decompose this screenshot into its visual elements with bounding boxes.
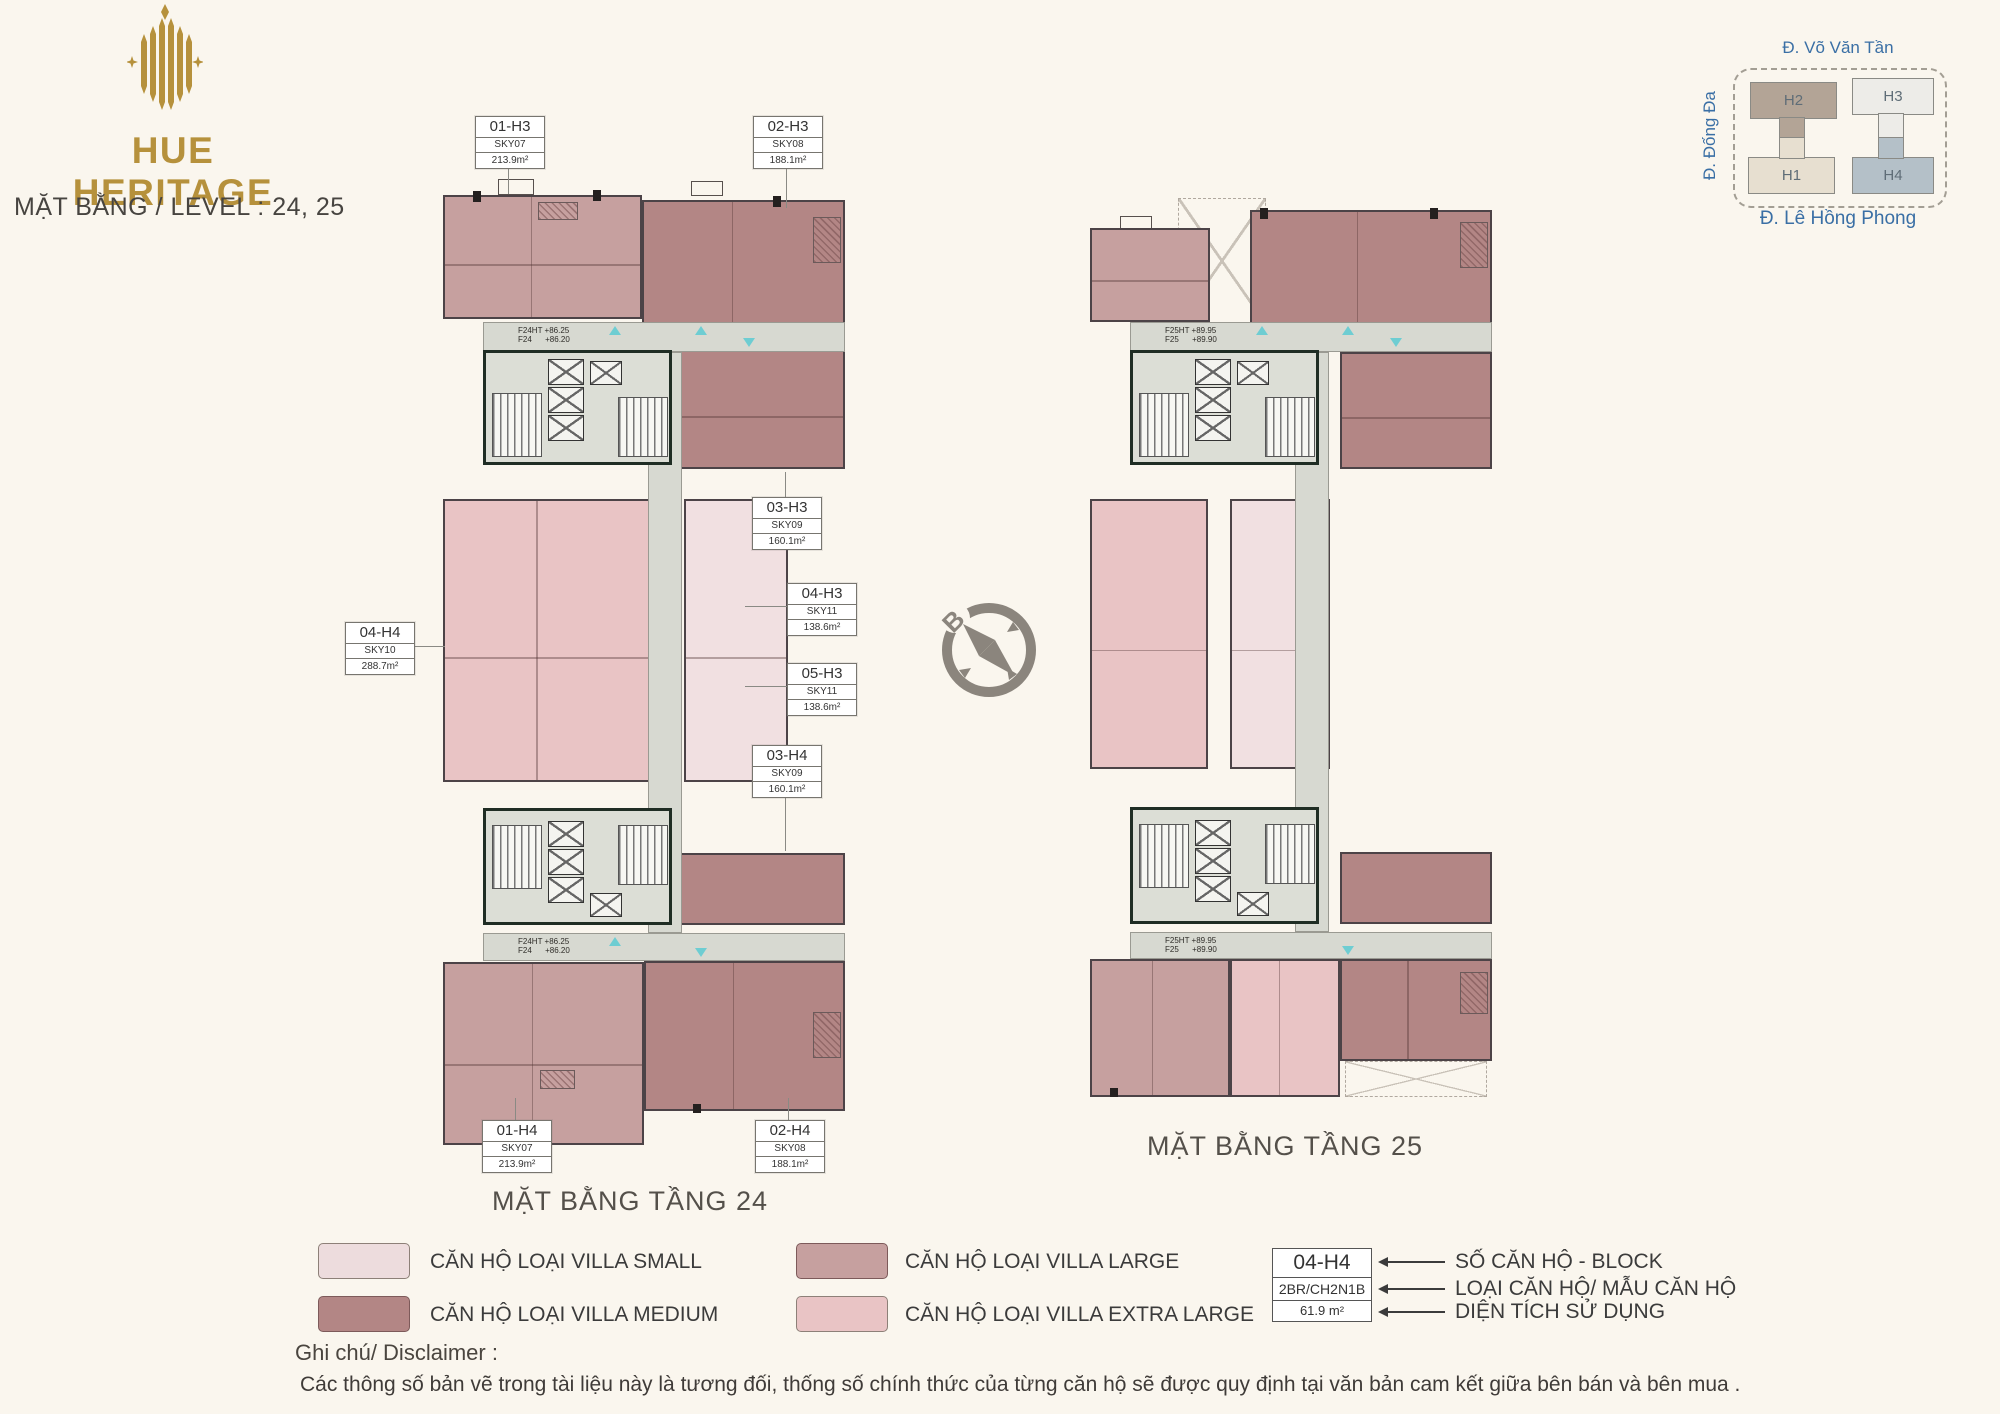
unit-label-03-h4: 03-H4 SKY09 160.1m²: [752, 745, 822, 798]
site-connector: [1779, 137, 1805, 159]
caption-level-24: MẶT BẰNG TẦNG 24: [440, 1186, 820, 1217]
key-example-code: 04-H4: [1273, 1249, 1371, 1277]
balcony-stub: [691, 181, 723, 196]
compass-north-icon: B: [933, 594, 1045, 706]
elevator-icon: [1195, 848, 1231, 874]
unit-04-h4-villa-extra-large: [443, 499, 654, 782]
elevator-icon: [590, 893, 622, 917]
legend-swatch-villa-large: [796, 1243, 888, 1279]
brochure-page: HUE HERITAGE MẶT BẰNG / LEVEL : 24, 25 Đ…: [0, 0, 2000, 1414]
site-block-h3: H3: [1852, 78, 1934, 115]
void-opening: [1345, 1061, 1487, 1097]
key-pointer-block: SỐ CĂN HỘ - BLOCK: [1455, 1250, 1663, 1274]
balcony-hatch: [813, 217, 841, 263]
page-title: MẶT BẰNG / LEVEL : 24, 25: [14, 193, 345, 222]
unit-label-01-h4: 01-H4 SKY07 213.9m²: [482, 1120, 552, 1173]
key-pointer-area: DIỆN TÍCH SỬ DỤNG: [1455, 1300, 1665, 1324]
leader-line: [745, 686, 787, 687]
caption-level-25: MẶT BẰNG TẦNG 25: [1095, 1131, 1475, 1162]
stairs-icon: [1265, 824, 1315, 884]
direction-arrow: [1342, 326, 1354, 335]
unit-label-02-h4: 02-H4 SKY08 188.1m²: [755, 1120, 825, 1173]
key-pointer-type: LOẠI CĂN HỘ/ MẪU CĂN HỘ: [1455, 1277, 1736, 1301]
legend-label-villa-medium: CĂN HỘ LOẠI VILLA MEDIUM: [430, 1303, 718, 1327]
floor-plan-level-25: F25HT +89.95 F25 +89.90 F25HT +89.95 F25…: [1090, 192, 1492, 1097]
elevator-core-upper: [1130, 350, 1319, 465]
level-elevation-note: F25HT +89.95 F25 +89.90: [1165, 936, 1217, 954]
leader-line: [785, 796, 786, 851]
key-example-box: 04-H4 2BR/CH2N1B 61.9 m²: [1272, 1248, 1372, 1322]
elevator-core-lower: [1130, 807, 1319, 924]
legend-label-villa-small: CĂN HỘ LOẠI VILLA SMALL: [430, 1250, 702, 1274]
site-block-h1-label: H1: [1782, 167, 1801, 184]
key-pointer-line: [1383, 1311, 1445, 1313]
wall-tick: [473, 191, 481, 202]
site-block-h3-label: H3: [1883, 88, 1902, 105]
stairs-icon: [618, 397, 668, 457]
elevator-icon: [548, 877, 584, 903]
elevator-icon: [1195, 359, 1231, 385]
floor-plan-level-24: F24HT +86.25 F24 +86.20 F24HT +86.25 F24…: [443, 192, 845, 1145]
balcony-hatch: [813, 1012, 841, 1058]
level-elevation-note: F25HT +89.95 F25 +89.90: [1165, 326, 1217, 344]
elevator-icon: [1195, 387, 1231, 413]
unit-label-04-h3: 04-H3 SKY11 138.6m²: [787, 583, 857, 636]
unit-label-04-h4: 04-H4 SKY10 288.7m²: [345, 622, 415, 675]
site-block-h2: H2: [1750, 82, 1837, 119]
disclaimer-title: Ghi chú/ Disclaimer :: [295, 1340, 498, 1366]
leader-line: [788, 1098, 789, 1120]
wall-tick: [1260, 208, 1268, 219]
elevator-icon: [1195, 415, 1231, 441]
site-block-h4-label: H4: [1883, 167, 1902, 184]
site-block-h1: H1: [1748, 157, 1835, 194]
leader-line: [785, 472, 786, 497]
leader-line: [413, 646, 445, 647]
balcony-hatch: [538, 202, 578, 220]
unit-villa-extra-large: [1230, 959, 1340, 1097]
direction-arrow: [1390, 338, 1402, 347]
legend-label-villa-large: CĂN HỘ LOẠI VILLA LARGE: [905, 1250, 1179, 1274]
elevator-icon: [548, 387, 584, 413]
stairs-icon: [1139, 393, 1189, 457]
stairs-icon: [492, 825, 542, 889]
balcony-hatch: [540, 1070, 575, 1089]
stairs-icon: [1265, 397, 1315, 457]
stairs-icon: [618, 825, 668, 885]
site-connector: [1878, 137, 1904, 159]
wall-tick: [1430, 208, 1438, 219]
leader-line: [786, 164, 787, 208]
key-example-area: 61.9 m²: [1273, 1300, 1371, 1321]
direction-arrow: [743, 338, 755, 347]
legend-swatch-villa-medium: [318, 1296, 410, 1332]
direction-arrow: [609, 326, 621, 335]
balcony-hatch: [1460, 972, 1488, 1014]
elevator-icon: [1195, 820, 1231, 846]
balcony-stub: [498, 179, 534, 195]
street-label-le-hong-phong: Đ. Lê Hồng Phong: [1723, 208, 1953, 230]
street-label-vo-van-tan: Đ. Võ Văn Tần: [1733, 38, 1943, 58]
unit-label-02-h3: 02-H3 SKY08 188.1m²: [753, 116, 823, 169]
wall-tick: [593, 190, 601, 201]
unit-03-h4-villa-medium: [672, 853, 845, 925]
key-pointer-line: [1383, 1288, 1445, 1290]
site-block-h4: H4: [1852, 157, 1934, 194]
key-pointer-line: [1383, 1261, 1445, 1263]
direction-arrow: [1342, 946, 1354, 955]
leader-line: [745, 606, 787, 607]
leader-line: [515, 1098, 516, 1120]
unit-villa-large: [1090, 228, 1210, 322]
direction-arrow: [1256, 326, 1268, 335]
hue-heritage-logo-icon: [127, 4, 203, 122]
elevator-icon: [590, 361, 622, 385]
unit-villa-medium: [1340, 352, 1492, 469]
unit-villa-large: [1090, 959, 1230, 1097]
direction-arrow: [695, 948, 707, 957]
elevator-icon: [548, 849, 584, 875]
direction-arrow: [609, 937, 621, 946]
level-elevation-note: F24HT +86.25 F24 +86.20: [518, 937, 570, 955]
key-example-type: 2BR/CH2N1B: [1273, 1277, 1371, 1300]
site-connector: [1878, 113, 1904, 139]
elevator-icon: [548, 359, 584, 385]
elevator-icon: [1237, 361, 1269, 385]
wall-tick: [1110, 1088, 1118, 1097]
wall-tick: [773, 196, 781, 207]
elevator-core-upper: [483, 350, 672, 465]
street-label-dong-da: Đ. Đống Đa: [1700, 66, 1720, 206]
wall-tick: [693, 1104, 701, 1113]
stairs-icon: [492, 393, 542, 457]
site-connector: [1779, 117, 1805, 139]
disclaimer-text: Các thông số bản vẽ trong tài liệu này l…: [300, 1373, 1740, 1397]
unit-label-01-h3: 01-H3 SKY07 213.9m²: [475, 116, 545, 169]
elevator-core-lower: [483, 808, 672, 925]
unit-03-h3-villa-medium: [672, 350, 845, 469]
unit-label-03-h3: 03-H3 SKY09 160.1m²: [752, 497, 822, 550]
elevator-icon: [1195, 876, 1231, 902]
legend-label-villa-extra-large: CĂN HỘ LOẠI VILLA EXTRA LARGE: [905, 1303, 1254, 1327]
direction-arrow: [695, 326, 707, 335]
unit-label-05-h3: 05-H3 SKY11 138.6m²: [787, 663, 857, 716]
stairs-icon: [1139, 824, 1189, 888]
site-block-h2-label: H2: [1784, 92, 1803, 109]
elevator-icon: [548, 821, 584, 847]
unit-villa-medium: [1340, 852, 1492, 924]
legend-swatch-villa-extra-large: [796, 1296, 888, 1332]
level-elevation-note: F24HT +86.25 F24 +86.20: [518, 326, 570, 344]
unit-villa-extra-large: [1090, 499, 1208, 769]
unit-01-h4-villa-large: [443, 962, 644, 1145]
balcony-hatch: [1460, 222, 1488, 268]
elevator-icon: [548, 415, 584, 441]
elevator-icon: [1237, 892, 1269, 916]
legend-swatch-villa-small: [318, 1243, 410, 1279]
